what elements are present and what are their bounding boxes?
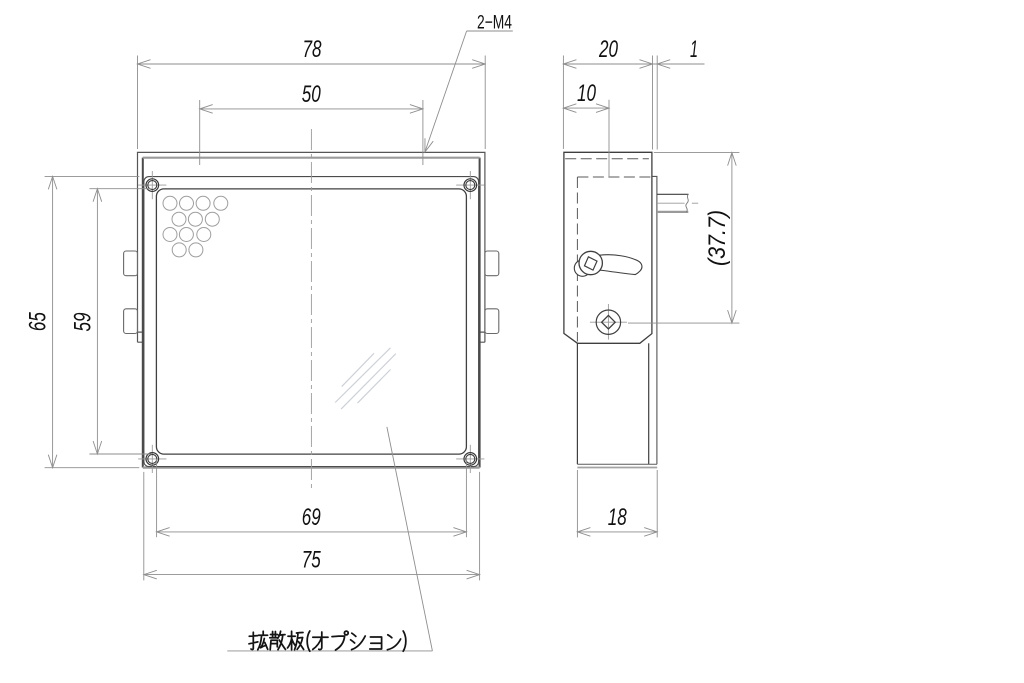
svg-text:65: 65	[25, 312, 52, 331]
svg-text:78: 78	[303, 36, 322, 63]
svg-text:1: 1	[690, 36, 698, 63]
svg-text:10: 10	[577, 80, 596, 107]
svg-text:50: 50	[302, 81, 321, 108]
svg-text:59: 59	[69, 313, 96, 332]
svg-text:2−M4: 2−M4	[477, 12, 512, 34]
svg-text:69: 69	[302, 504, 321, 531]
svg-text:20: 20	[598, 36, 618, 63]
svg-text:(37.7): (37.7)	[704, 210, 731, 266]
svg-text:18: 18	[608, 504, 627, 531]
svg-text:75: 75	[302, 547, 321, 574]
